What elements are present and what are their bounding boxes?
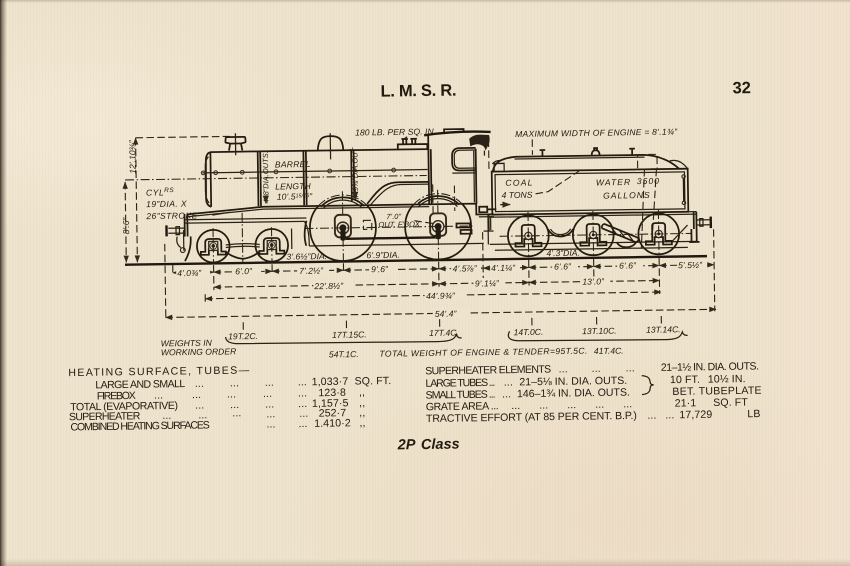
svg-text:4’.0¾”: 4’.0¾”: [177, 268, 202, 278]
svg-text:WORKING ORDER: WORKING ORDER: [161, 346, 237, 357]
svg-text:54’.4”: 54’.4”: [435, 309, 458, 319]
svg-text:CYLRS: CYLRS: [146, 187, 175, 198]
svg-text:32: 32: [732, 79, 751, 97]
svg-text:41T.4C.: 41T.4C.: [594, 346, 624, 356]
svg-text:COAL: COAL: [505, 177, 533, 187]
svg-text:MAXIMUM WIDTH OF ENGINE = 8’.1: MAXIMUM WIDTH OF ENGINE = 8’.1¾”: [515, 127, 678, 139]
svg-text:6’.6”: 6’.6”: [619, 260, 637, 270]
svg-text:17,729: 17,729: [679, 409, 712, 421]
svg-text:6’.6”: 6’.6”: [554, 261, 572, 271]
svg-text:LB: LB: [747, 408, 760, 420]
svg-text:4’.9⅝”DIA.OUT̾: 4’.9⅝”DIA.OUT̾: [349, 146, 360, 199]
svg-text:21–1½ IN. DIA. OUTS.: 21–1½ IN. DIA. OUTS.: [661, 360, 759, 373]
svg-text:17T.4C.: 17T.4C.: [429, 328, 459, 338]
svg-text:13T.14C.: 13T.14C.: [646, 324, 681, 335]
svg-text:10½ IN.: 10½ IN.: [708, 373, 746, 386]
svg-text:9’.6”: 9’.6”: [371, 264, 389, 274]
svg-text:4’.1¼”: 4’.1¼”: [491, 263, 516, 273]
svg-text:TOTAL WEIGHT OF ENGINE & TENDE: TOTAL WEIGHT OF ENGINE & TENDER=95T.5C.: [379, 346, 587, 359]
svg-text:LENGTH: LENGTH: [275, 181, 311, 192]
svg-text:1.410·2: 1.410·2: [314, 417, 351, 430]
svg-text:...: ...: [266, 418, 275, 430]
svg-text:54T.1C.: 54T.1C.: [329, 349, 359, 359]
svg-text:SQ. FT: SQ. FT: [713, 397, 748, 410]
svg-text:L. M. S. R.: L. M. S. R.: [380, 82, 457, 101]
svg-text:8’.6”: 8’.6”: [121, 217, 131, 235]
svg-text:4 TONS: 4 TONS: [501, 190, 532, 200]
svg-text:10 FT.: 10 FT.: [670, 374, 700, 386]
svg-text:HEATING SURFACE, TUBES—: HEATING SURFACE, TUBES—: [68, 364, 249, 379]
svg-text:...: ...: [502, 388, 511, 400]
svg-text:...: ...: [298, 418, 307, 430]
svg-text:...: ...: [567, 399, 576, 411]
svg-text:9’.1¼”: 9’.1¼”: [475, 278, 500, 288]
svg-text:12’.10⅜”: 12’.10⅜”: [127, 139, 138, 174]
svg-text:19T.2C.: 19T.2C.: [228, 331, 258, 341]
svg-text:...: ...: [504, 377, 513, 389]
svg-text:...: ...: [539, 399, 548, 411]
svg-text:...: ...: [559, 363, 568, 375]
svg-text:10’.515/16”: 10’.515/16”: [277, 191, 314, 202]
svg-text:...: ...: [232, 407, 241, 419]
svg-text:...: ...: [665, 409, 674, 421]
svg-text:BARREL: BARREL: [275, 159, 311, 170]
svg-text:6’.0”: 6’.0”: [235, 266, 253, 276]
svg-text:19”DIA. X: 19”DIA. X: [146, 199, 187, 210]
svg-text:...: ...: [626, 362, 635, 374]
svg-text:5’.5½”: 5’.5½”: [678, 260, 703, 270]
svg-text:...: ...: [511, 400, 520, 412]
svg-text:...: ...: [647, 410, 656, 422]
svg-text:6’.9”DIA.: 6’.9”DIA.: [366, 250, 400, 260]
svg-text:...: ...: [595, 399, 604, 411]
svg-text:4’.5⅞”: 4’.5⅞”: [453, 263, 478, 273]
svg-text:7’.2½”: 7’.2½”: [299, 265, 324, 275]
svg-text:13’.0”: 13’.0”: [582, 276, 605, 286]
svg-text:2P Class: 2P Class: [397, 437, 460, 454]
svg-text:BET. TUBEPLATE: BET. TUBEPLATE: [672, 385, 761, 398]
svg-text:44’.9¾”: 44’.9¾”: [426, 291, 456, 301]
svg-text:180 LB. PER SQ. IN.: 180 LB. PER SQ. IN.: [355, 126, 436, 137]
svg-text:3’.6½”DIA.: 3’.6½”DIA.: [286, 251, 327, 262]
svg-text:...: ...: [623, 398, 632, 410]
svg-text:22’.8½”: 22’.8½”: [313, 281, 344, 291]
svg-text:13T.10C.: 13T.10C.: [582, 326, 617, 337]
svg-text:,,: ,,: [359, 417, 365, 429]
svg-text:WATER: WATER: [596, 177, 631, 188]
svg-text:COMBINED HEATING SURFACES: COMBINED HEATING SURFACES: [70, 419, 210, 433]
svg-text:GALLONS: GALLONS: [603, 190, 651, 201]
svg-text:21·1: 21·1: [675, 397, 697, 409]
svg-text:14T.0C.: 14T.0C.: [514, 327, 544, 337]
svg-text:3500: 3500: [637, 176, 660, 186]
svg-text:...: ...: [592, 363, 601, 375]
svg-text:17T.15C.: 17T.15C.: [332, 329, 367, 340]
svg-text:TRACTIVE EFFORT (AT 85 PER CEN: TRACTIVE EFFORT (AT 85 PER CENT. B.P.): [426, 410, 637, 425]
